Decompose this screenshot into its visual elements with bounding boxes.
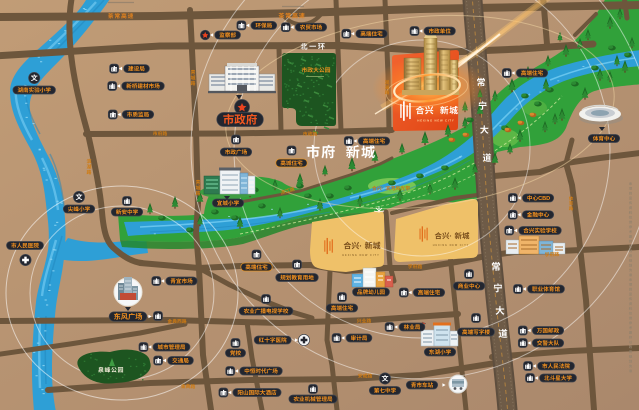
svg-text:HEXING NEW CITY: HEXING NEW CITY xyxy=(417,119,454,123)
svg-text:HEXING NEW CITY: HEXING NEW CITY xyxy=(342,254,380,257)
svg-text:HEXING NEW CITY: HEXING NEW CITY xyxy=(433,244,470,247)
svg-text:·: · xyxy=(450,232,453,241)
svg-text:·: · xyxy=(359,242,362,251)
svg-text:CBD: CBD xyxy=(538,196,550,202)
